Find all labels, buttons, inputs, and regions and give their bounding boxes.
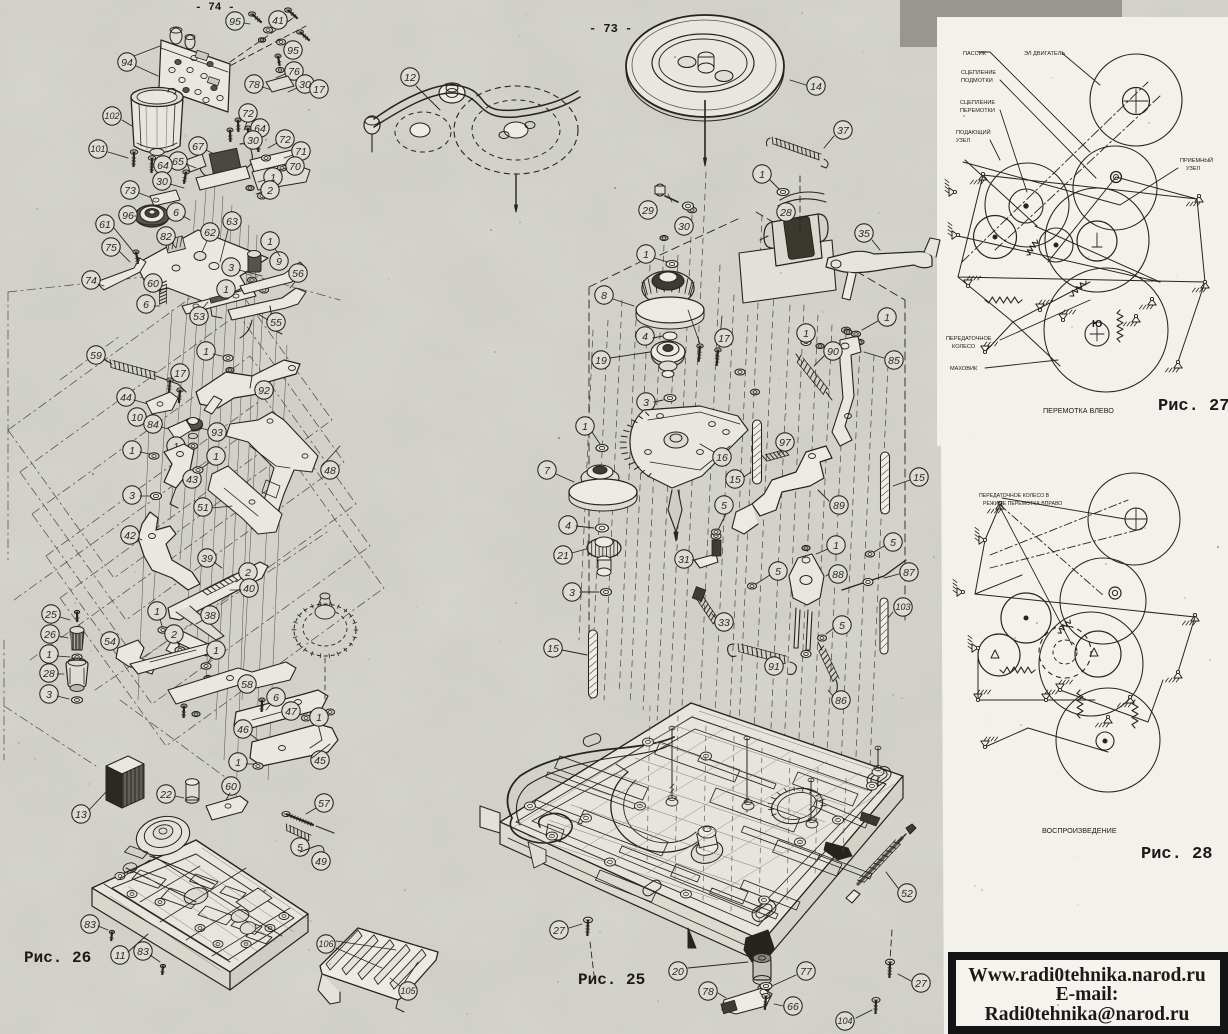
svg-text:70: 70 — [289, 161, 301, 173]
svg-text:40: 40 — [243, 583, 255, 595]
svg-text:6: 6 — [273, 692, 279, 704]
svg-text:1: 1 — [235, 757, 241, 769]
svg-text:104: 104 — [837, 1016, 852, 1026]
svg-text:33: 33 — [718, 617, 730, 629]
svg-text:2: 2 — [244, 567, 251, 579]
svg-text:22: 22 — [159, 789, 172, 801]
svg-text:1: 1 — [154, 606, 160, 618]
svg-text:1: 1 — [223, 284, 229, 296]
svg-text:31: 31 — [678, 554, 690, 566]
svg-text:97: 97 — [779, 437, 792, 449]
svg-text:3: 3 — [643, 397, 649, 409]
svg-text:53: 53 — [193, 311, 205, 323]
svg-text:9: 9 — [276, 256, 282, 268]
svg-text:1: 1 — [884, 312, 890, 324]
svg-text:95: 95 — [229, 16, 241, 28]
svg-text:15: 15 — [913, 472, 925, 484]
svg-text:10: 10 — [131, 412, 143, 424]
svg-text:17: 17 — [718, 333, 731, 345]
svg-text:СЦЕПЛЕНИЕ: СЦЕПЛЕНИЕ — [960, 100, 995, 106]
svg-text:Рис. 27: Рис. 27 — [1158, 397, 1228, 416]
svg-text:ПОДАЮЩИЙ: ПОДАЮЩИЙ — [956, 128, 991, 136]
svg-text:71: 71 — [295, 146, 307, 158]
svg-text:1: 1 — [129, 445, 135, 457]
svg-text:55: 55 — [270, 317, 282, 329]
svg-text:16: 16 — [716, 452, 728, 464]
svg-text:ПЕРЕМОТКА ВЛЕВО: ПЕРЕМОТКА ВЛЕВО — [1043, 406, 1114, 415]
svg-text:6: 6 — [173, 207, 179, 219]
svg-text:72: 72 — [242, 108, 254, 120]
svg-text:92: 92 — [258, 385, 270, 397]
svg-text:30: 30 — [299, 79, 311, 91]
svg-text:Рис. 25: Рис. 25 — [578, 971, 645, 989]
svg-text:Ю: Ю — [1092, 319, 1102, 330]
svg-text:83: 83 — [137, 946, 149, 958]
svg-text:4: 4 — [565, 520, 571, 532]
svg-text:46: 46 — [237, 724, 249, 736]
svg-text:8: 8 — [601, 290, 607, 302]
svg-text:E-mail:: E-mail: — [1056, 984, 1119, 1005]
svg-text:73: 73 — [124, 185, 136, 197]
svg-text:19: 19 — [595, 355, 607, 367]
svg-text:- 74 -: - 74 - — [195, 2, 235, 14]
svg-text:21: 21 — [556, 550, 569, 562]
svg-text:30: 30 — [678, 221, 690, 233]
svg-text:28: 28 — [779, 207, 792, 219]
svg-text:42: 42 — [124, 530, 136, 542]
svg-text:60: 60 — [147, 278, 159, 290]
svg-text:56: 56 — [292, 268, 304, 280]
svg-text:КОЛЕСО: КОЛЕСО — [952, 344, 976, 350]
svg-text:ПЕРЕМОТКИ: ПЕРЕМОТКИ — [960, 108, 995, 114]
svg-text:27: 27 — [914, 978, 928, 990]
svg-text:СЦЕПЛЕНИЕ: СЦЕПЛЕНИЕ — [961, 70, 996, 76]
svg-text:1: 1 — [46, 649, 52, 661]
svg-text:ПОДМОТКИ: ПОДМОТКИ — [961, 78, 993, 84]
svg-text:66: 66 — [787, 1001, 799, 1013]
svg-text:67: 67 — [192, 141, 205, 153]
svg-text:64: 64 — [157, 160, 169, 172]
svg-text:1: 1 — [213, 645, 219, 657]
svg-text:Рис. 28: Рис. 28 — [1141, 845, 1212, 864]
svg-text:29: 29 — [641, 205, 654, 217]
svg-text:28: 28 — [42, 668, 55, 680]
svg-text:57: 57 — [318, 798, 331, 810]
svg-text:17: 17 — [313, 84, 326, 96]
svg-text:6: 6 — [143, 299, 149, 311]
svg-text:2: 2 — [170, 629, 177, 641]
svg-text:13: 13 — [75, 809, 87, 821]
svg-text:5: 5 — [721, 500, 727, 512]
svg-text:60: 60 — [225, 781, 237, 793]
svg-text:5: 5 — [775, 566, 781, 578]
svg-text:105: 105 — [400, 986, 416, 996]
svg-text:103: 103 — [895, 602, 910, 612]
svg-text:2: 2 — [266, 185, 273, 197]
svg-text:3: 3 — [129, 490, 135, 502]
svg-text:90: 90 — [827, 346, 839, 358]
svg-text:38: 38 — [204, 610, 216, 622]
svg-text:89: 89 — [833, 500, 845, 512]
svg-text:35: 35 — [858, 228, 870, 240]
svg-text:Radi0tehnika@narod.ru: Radi0tehnika@narod.ru — [985, 1004, 1190, 1025]
svg-text:83: 83 — [84, 919, 96, 931]
svg-text:88: 88 — [832, 569, 844, 581]
svg-text:УЗЕЛ: УЗЕЛ — [956, 138, 971, 144]
svg-text:91: 91 — [768, 661, 780, 673]
svg-text:ВОСПРОИЗВЕДЕНИЕ: ВОСПРОИЗВЕДЕНИЕ — [1042, 826, 1117, 835]
svg-text:30: 30 — [156, 176, 168, 188]
svg-text:85: 85 — [888, 355, 900, 367]
svg-text:96: 96 — [122, 210, 134, 222]
svg-text:51: 51 — [197, 502, 209, 514]
svg-text:61: 61 — [99, 219, 111, 231]
svg-text:77: 77 — [800, 966, 813, 978]
svg-text:17: 17 — [174, 368, 187, 380]
svg-text:ПРИЕМНЫЙ: ПРИЕМНЫЙ — [1180, 156, 1213, 164]
svg-text:3: 3 — [569, 587, 575, 599]
svg-text:101: 101 — [90, 144, 105, 154]
svg-text:82: 82 — [160, 231, 172, 243]
svg-text:5: 5 — [839, 620, 845, 632]
svg-text:41: 41 — [272, 15, 284, 27]
svg-text:87: 87 — [903, 567, 916, 579]
svg-text:3: 3 — [46, 689, 52, 701]
svg-text:39: 39 — [201, 553, 213, 565]
svg-text:59: 59 — [90, 350, 102, 362]
svg-text:4: 4 — [642, 331, 648, 343]
svg-text:106: 106 — [318, 939, 333, 949]
svg-text:11: 11 — [115, 950, 126, 962]
svg-text:25: 25 — [44, 609, 57, 621]
svg-text:1: 1 — [213, 451, 219, 463]
svg-text:47: 47 — [285, 706, 298, 718]
svg-text:52: 52 — [901, 888, 913, 900]
svg-text:78: 78 — [248, 79, 260, 91]
svg-text:93: 93 — [211, 427, 223, 439]
svg-text:76: 76 — [288, 66, 300, 78]
svg-text:84: 84 — [147, 419, 159, 431]
svg-text:3: 3 — [228, 262, 234, 274]
svg-text:27: 27 — [552, 925, 566, 937]
svg-text:95: 95 — [287, 45, 299, 57]
svg-text:65: 65 — [172, 156, 184, 168]
svg-text:14: 14 — [810, 81, 822, 93]
svg-text:15: 15 — [547, 643, 559, 655]
svg-text:1: 1 — [582, 421, 588, 433]
svg-text:Www.radi0tehnika.narod.ru: Www.radi0tehnika.narod.ru — [968, 965, 1206, 986]
svg-text:48: 48 — [324, 465, 336, 477]
svg-text:74: 74 — [85, 275, 97, 287]
svg-text:5: 5 — [890, 537, 896, 549]
svg-text:26: 26 — [43, 629, 56, 641]
svg-text:1: 1 — [643, 249, 649, 261]
svg-text:1: 1 — [759, 169, 765, 181]
svg-text:Рис. 26: Рис. 26 — [24, 949, 91, 967]
svg-text:УЗЕЛ: УЗЕЛ — [1186, 166, 1201, 172]
svg-text:1: 1 — [833, 540, 839, 552]
svg-text:43: 43 — [186, 474, 198, 486]
svg-text:1: 1 — [316, 712, 322, 724]
svg-text:- 73 -: - 73 - — [589, 22, 632, 36]
svg-text:94: 94 — [121, 57, 133, 69]
svg-text:86: 86 — [835, 695, 847, 707]
svg-text:1: 1 — [267, 236, 273, 248]
svg-text:ПАССИК: ПАССИК — [963, 51, 987, 57]
svg-text:МАХОВИК: МАХОВИК — [950, 366, 978, 372]
svg-text:45: 45 — [314, 755, 326, 767]
svg-text:62: 62 — [204, 227, 216, 239]
svg-text:44: 44 — [120, 392, 132, 404]
svg-text:20: 20 — [671, 966, 684, 978]
svg-text:49: 49 — [315, 856, 327, 868]
svg-text:30: 30 — [247, 135, 259, 147]
svg-text:78: 78 — [702, 986, 714, 998]
svg-text:72: 72 — [279, 134, 291, 146]
svg-text:75: 75 — [105, 242, 117, 254]
svg-text:ПЕРЕДАТОЧНОЕ: ПЕРЕДАТОЧНОЕ — [946, 336, 992, 342]
svg-text:РЕЖИМЕ ПЕРЕМОТКА ВПРАВО: РЕЖИМЕ ПЕРЕМОТКА ВПРАВО — [983, 501, 1062, 507]
svg-text:58: 58 — [241, 679, 253, 691]
svg-text:15: 15 — [729, 474, 741, 486]
svg-text:37: 37 — [837, 125, 850, 137]
svg-text:63: 63 — [226, 216, 238, 228]
svg-text:ЭЛ ДВИГАТЕЛЬ: ЭЛ ДВИГАТЕЛЬ — [1024, 51, 1065, 57]
svg-text:1: 1 — [803, 328, 809, 340]
svg-text:102: 102 — [104, 111, 119, 121]
svg-text:ПЕРЕДАТОЧНОЕ КОЛЕСО В: ПЕРЕДАТОЧНОЕ КОЛЕСО В — [979, 493, 1050, 499]
svg-text:1: 1 — [203, 346, 209, 358]
svg-text:12: 12 — [404, 72, 416, 84]
svg-text:54: 54 — [104, 636, 116, 648]
